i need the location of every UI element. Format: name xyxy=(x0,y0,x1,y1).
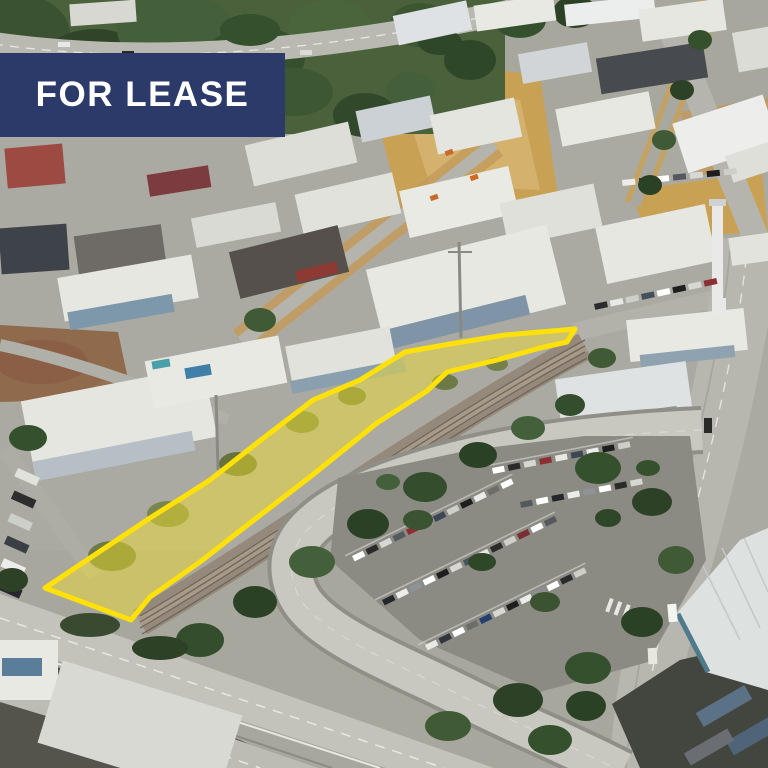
for-lease-banner-label: FOR LEASE xyxy=(36,75,250,115)
for-lease-banner: FOR LEASE xyxy=(0,53,285,137)
aerial-listing-image: FOR LEASE xyxy=(0,0,768,768)
